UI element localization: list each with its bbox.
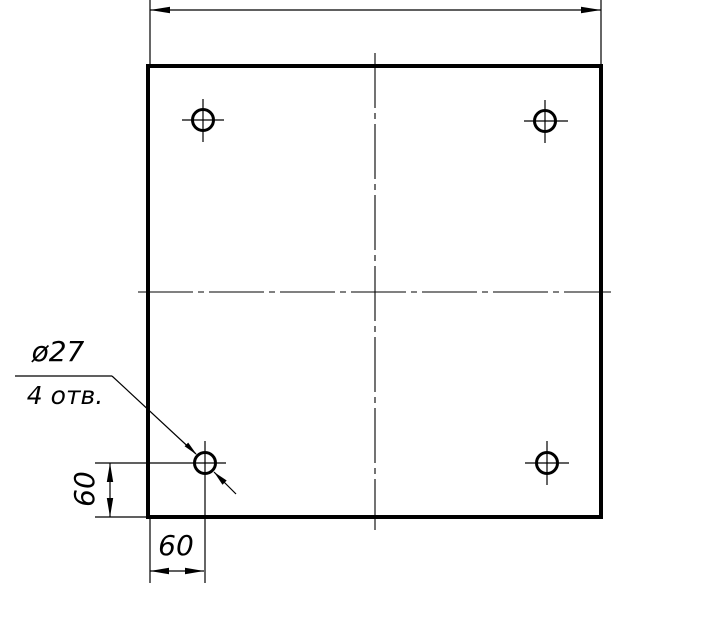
vertical-offset-dimension (95, 463, 147, 517)
hole-bottom-right (525, 441, 569, 485)
drawing-svg (0, 0, 713, 631)
arrowhead-left (150, 7, 170, 14)
horizontal-offset-value: 60 (145, 532, 207, 560)
drawing-canvas: ø27 4 отв. 60 60 (0, 0, 713, 631)
hole-top-right (524, 100, 568, 143)
leader-diagonal-line (112, 376, 196, 454)
hole-count-label: 4 отв. (22, 383, 108, 408)
hole-diameter-label: ø27 (15, 338, 101, 366)
arrowhead-left (150, 568, 169, 574)
leader-arrowhead-upper (185, 443, 197, 455)
arrowhead-down (107, 498, 113, 517)
hole-top-left (182, 99, 224, 142)
arrowhead-right (581, 7, 601, 14)
vertical-offset-value: 60 (71, 458, 99, 520)
arrowhead-up (107, 463, 113, 482)
arrowhead-right (185, 568, 204, 574)
